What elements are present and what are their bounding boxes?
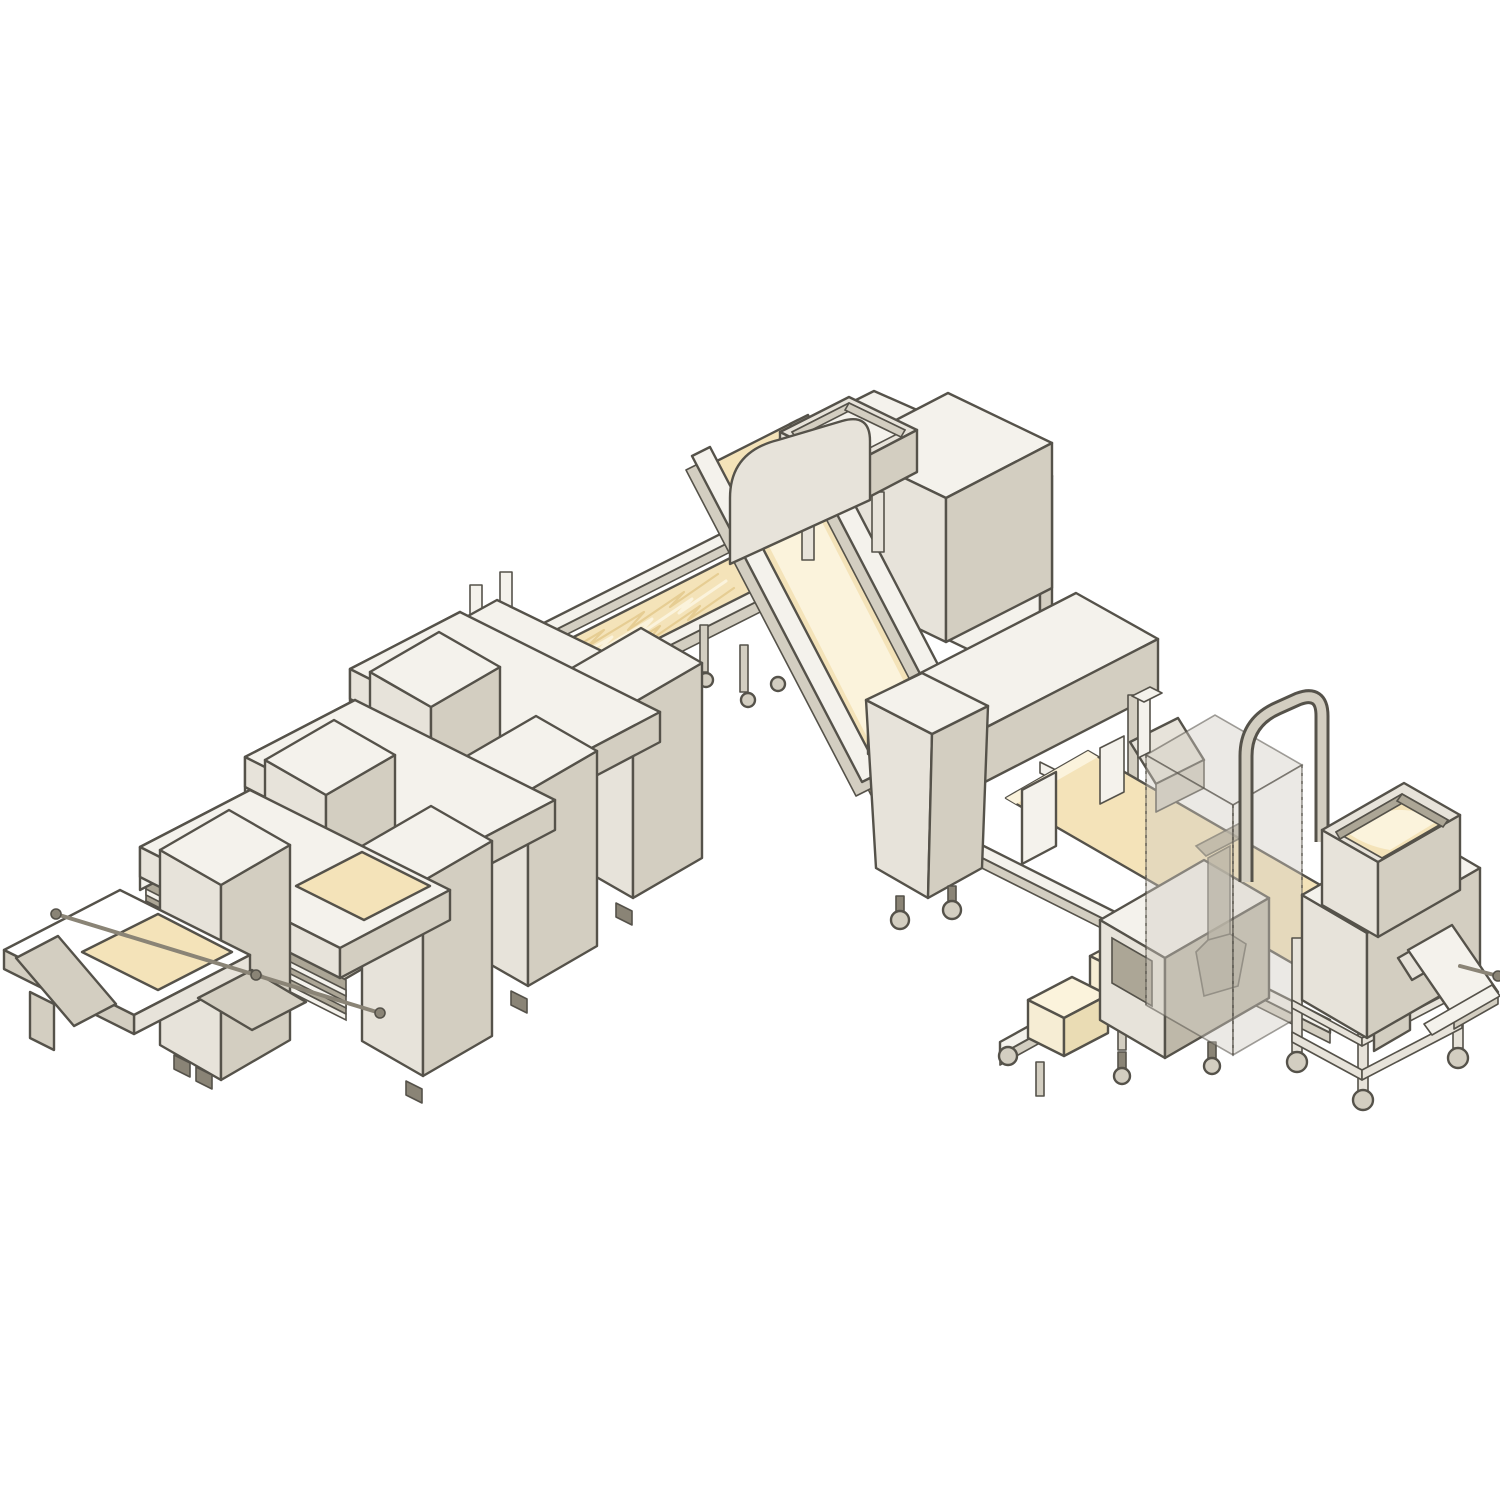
guard-front [1146,755,1233,1055]
rod-knob [375,1008,385,1018]
leg [1036,1062,1044,1096]
caster [1448,1048,1468,1068]
handle-knob [1493,971,1500,981]
caster [943,901,961,919]
bridge-tower [866,673,988,929]
illustration-canvas [0,0,1500,1500]
caster [891,911,909,929]
bracket-post [1138,694,1150,758]
caster [1287,1052,1307,1072]
caster [771,677,785,691]
rod-knob [51,909,61,919]
caster [741,693,755,707]
production-line-illustration [0,0,1500,1500]
safety-guard [1146,715,1302,1055]
table-leg [30,992,54,1050]
support-leg [740,645,748,692]
rod-clamp [251,970,261,980]
caster [1204,1058,1220,1074]
end-roller [999,1047,1017,1065]
caster-stem [1118,1052,1126,1068]
caster [1114,1068,1130,1084]
tower-side [928,706,988,898]
sheeter-line [140,612,702,1103]
guide-post [1100,736,1124,804]
hopper-leg [872,492,884,552]
caster-stem [948,886,956,902]
caster [1353,1090,1373,1110]
caster-stem [896,896,904,912]
